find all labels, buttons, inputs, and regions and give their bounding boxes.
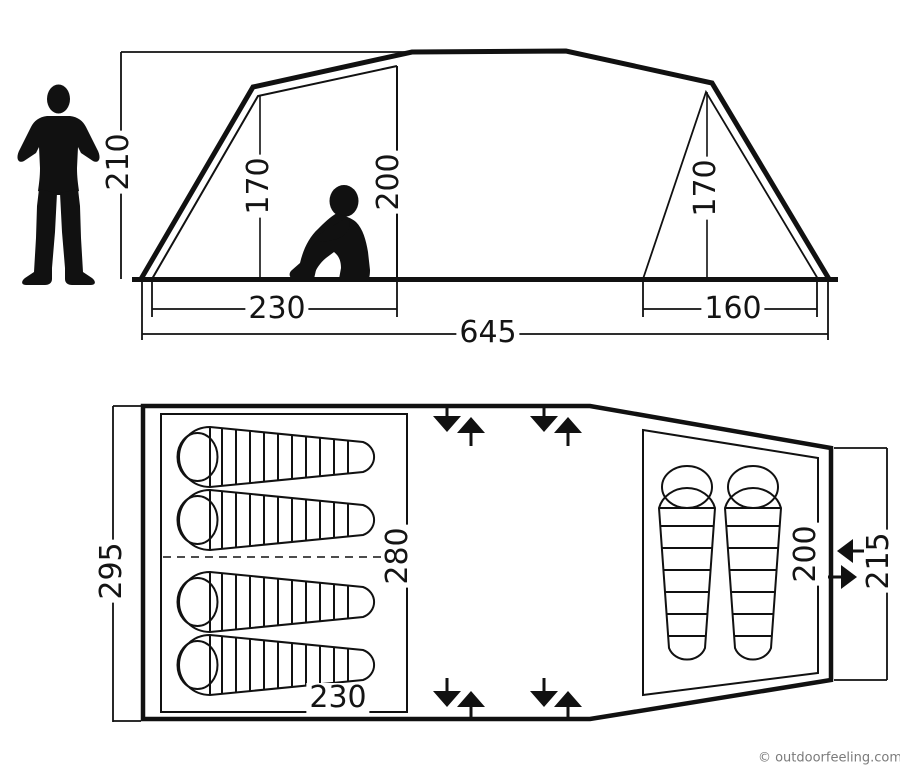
sitting-person-icon xyxy=(290,185,370,279)
dim-label-left-room-width: 230 xyxy=(245,294,308,324)
dim-label-plan-total-width: 295 xyxy=(97,539,127,602)
dim-label-plan-inner-width: 280 xyxy=(383,524,413,587)
dim-label-peak-height: 210 xyxy=(104,130,134,193)
dim-label-plan-right-section-width: 215 xyxy=(864,529,894,592)
dim-label-right-room-height: 170 xyxy=(691,156,721,219)
sleeping-bag-6-icon xyxy=(725,466,781,660)
sleeping-bag-1-icon xyxy=(178,427,375,487)
sleeping-bag-3-icon xyxy=(178,572,375,632)
tent-dimensions-diagram: 210 170 200 170 230 160 645 295 280 230 … xyxy=(0,0,900,775)
plan-left-room xyxy=(161,414,407,712)
dim-label-right-room-width: 160 xyxy=(701,294,764,324)
dim-label-total-length: 645 xyxy=(456,318,519,348)
standing-person-icon xyxy=(17,85,99,286)
inner-tent-right xyxy=(643,92,818,279)
vent-arrows-top-right-icon xyxy=(530,406,582,446)
sleeping-bag-5-icon xyxy=(659,466,715,660)
dim-label-left-room-height: 170 xyxy=(244,154,274,217)
dim-label-center-inner-height: 200 xyxy=(374,150,404,213)
vent-arrows-top-left-icon xyxy=(433,406,485,446)
dim-label-plan-left-room-length: 230 xyxy=(306,683,369,713)
vent-arrows-bottom-right-icon xyxy=(530,678,582,718)
plan-outer-boundary xyxy=(143,406,831,719)
watermark-text: © outdoorfeeling.com xyxy=(758,751,900,766)
sleeping-bag-2-icon xyxy=(178,490,375,550)
dim-label-plan-right-room-length: 200 xyxy=(791,522,821,585)
floor-plan xyxy=(113,406,887,722)
diagram-canvas xyxy=(0,0,900,775)
vent-arrows-bottom-left-icon xyxy=(433,678,485,718)
